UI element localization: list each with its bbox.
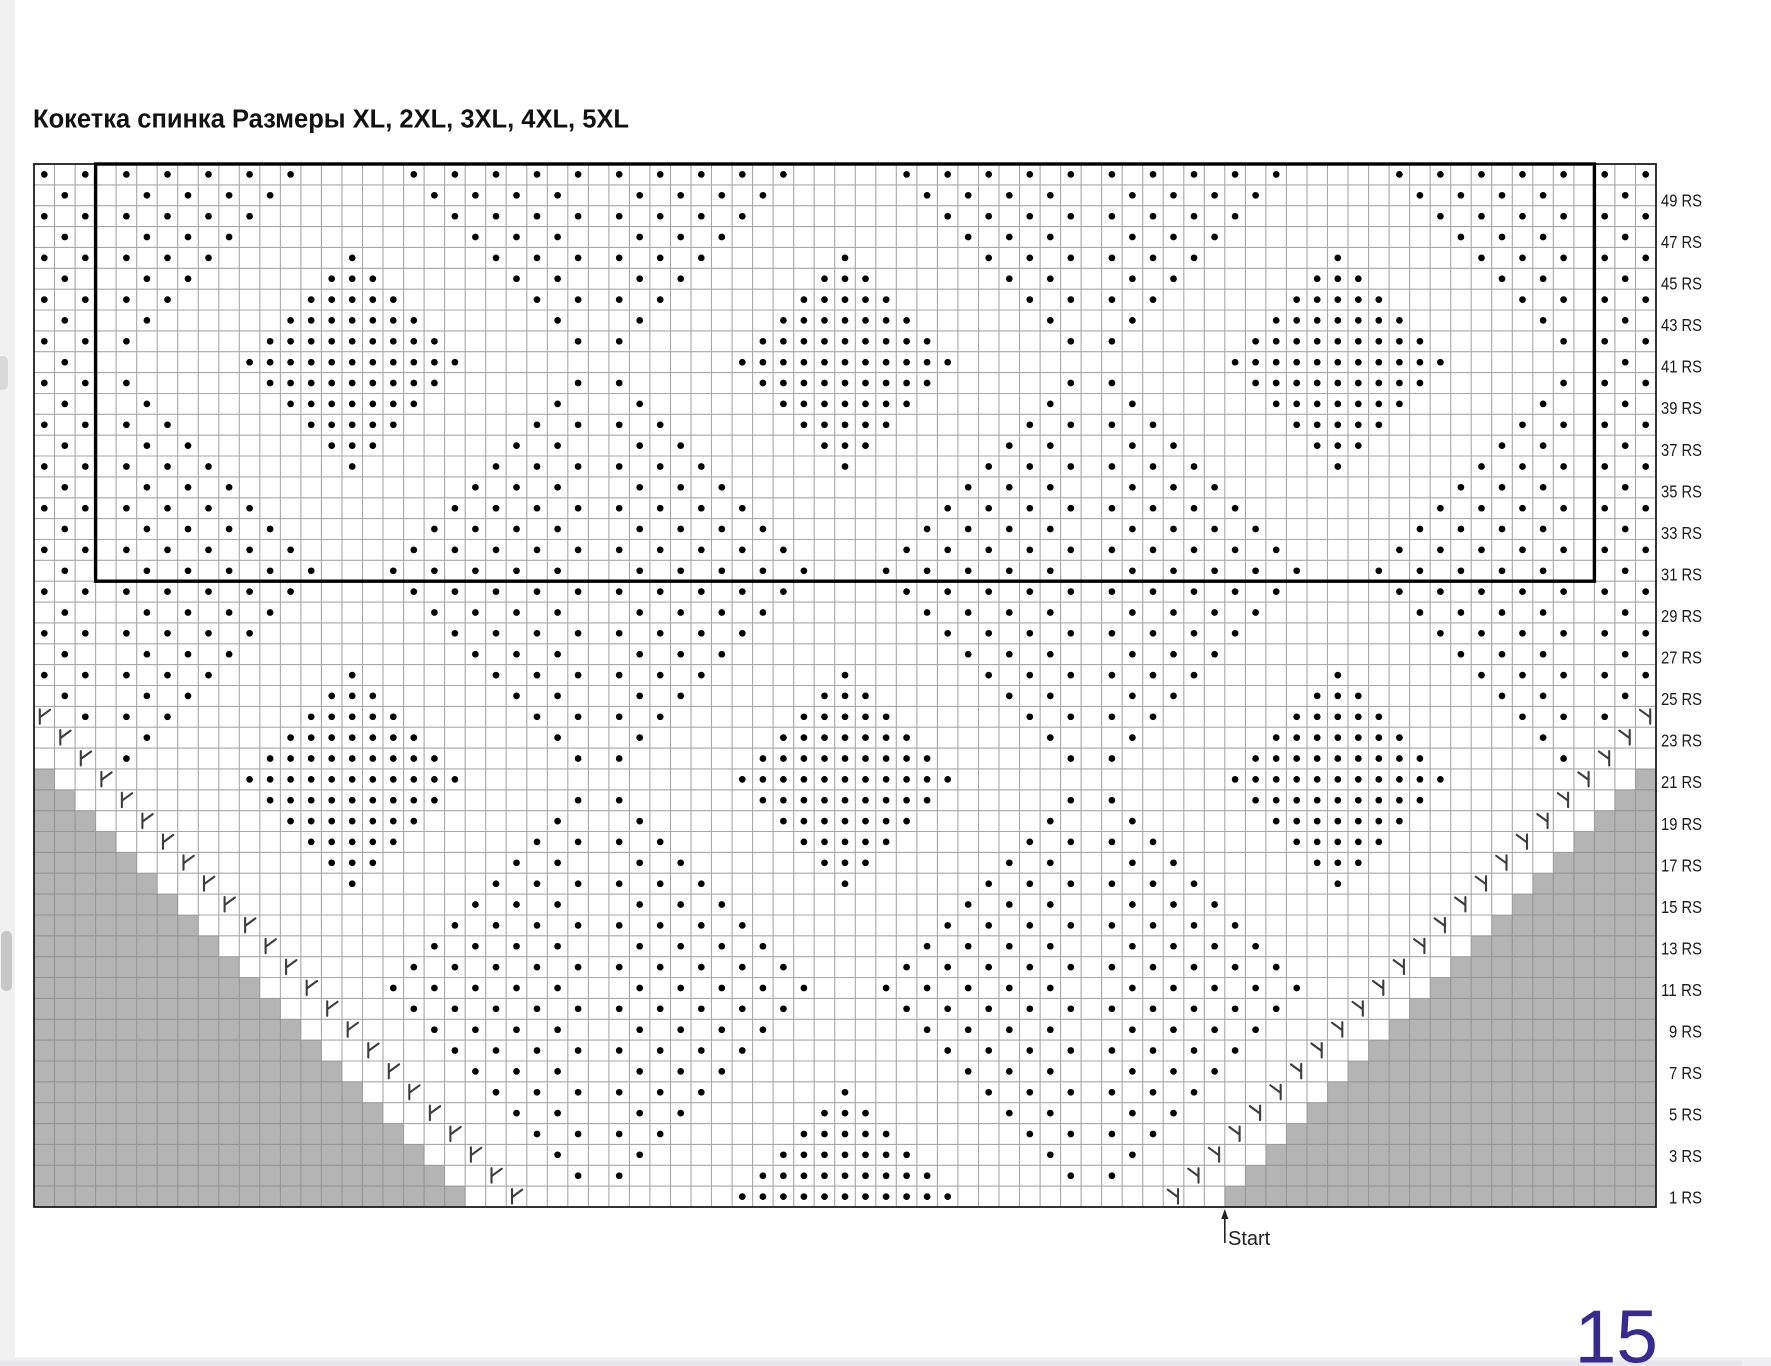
svg-text:29 RS: 29 RS <box>1661 606 1702 626</box>
svg-text:43 RS: 43 RS <box>1661 315 1702 335</box>
svg-text:19 RS: 19 RS <box>1661 814 1702 834</box>
svg-text:3 RS: 3 RS <box>1669 1146 1702 1166</box>
svg-text:35 RS: 35 RS <box>1661 481 1702 501</box>
svg-text:15: 15 <box>1575 1295 1658 1366</box>
svg-text:47 RS: 47 RS <box>1661 232 1702 252</box>
svg-text:33 RS: 33 RS <box>1661 523 1702 543</box>
svg-text:15 RS: 15 RS <box>1661 897 1702 917</box>
svg-text:13 RS: 13 RS <box>1661 938 1702 958</box>
svg-text:5 RS: 5 RS <box>1669 1105 1702 1125</box>
svg-text:41 RS: 41 RS <box>1661 357 1702 377</box>
svg-text:7 RS: 7 RS <box>1669 1063 1702 1083</box>
svg-text:31 RS: 31 RS <box>1661 565 1702 585</box>
svg-text:27 RS: 27 RS <box>1661 648 1702 668</box>
svg-text:45 RS: 45 RS <box>1661 274 1702 294</box>
svg-text:21 RS: 21 RS <box>1661 772 1702 792</box>
svg-text:11 RS: 11 RS <box>1661 980 1702 1000</box>
svg-text:49 RS: 49 RS <box>1661 191 1702 211</box>
svg-text:1 RS: 1 RS <box>1669 1188 1702 1208</box>
svg-text:Start: Start <box>1228 1228 1271 1250</box>
svg-text:39 RS: 39 RS <box>1661 398 1702 418</box>
svg-text:17 RS: 17 RS <box>1661 855 1702 875</box>
svg-text:25 RS: 25 RS <box>1661 689 1702 709</box>
svg-text:Кокетка спинка Размеры XL, 2XL: Кокетка спинка Размеры XL, 2XL, 3XL, 4XL… <box>33 106 629 134</box>
svg-text:23 RS: 23 RS <box>1661 731 1702 751</box>
svg-text:37 RS: 37 RS <box>1661 440 1702 460</box>
svg-text:9 RS: 9 RS <box>1669 1022 1702 1042</box>
